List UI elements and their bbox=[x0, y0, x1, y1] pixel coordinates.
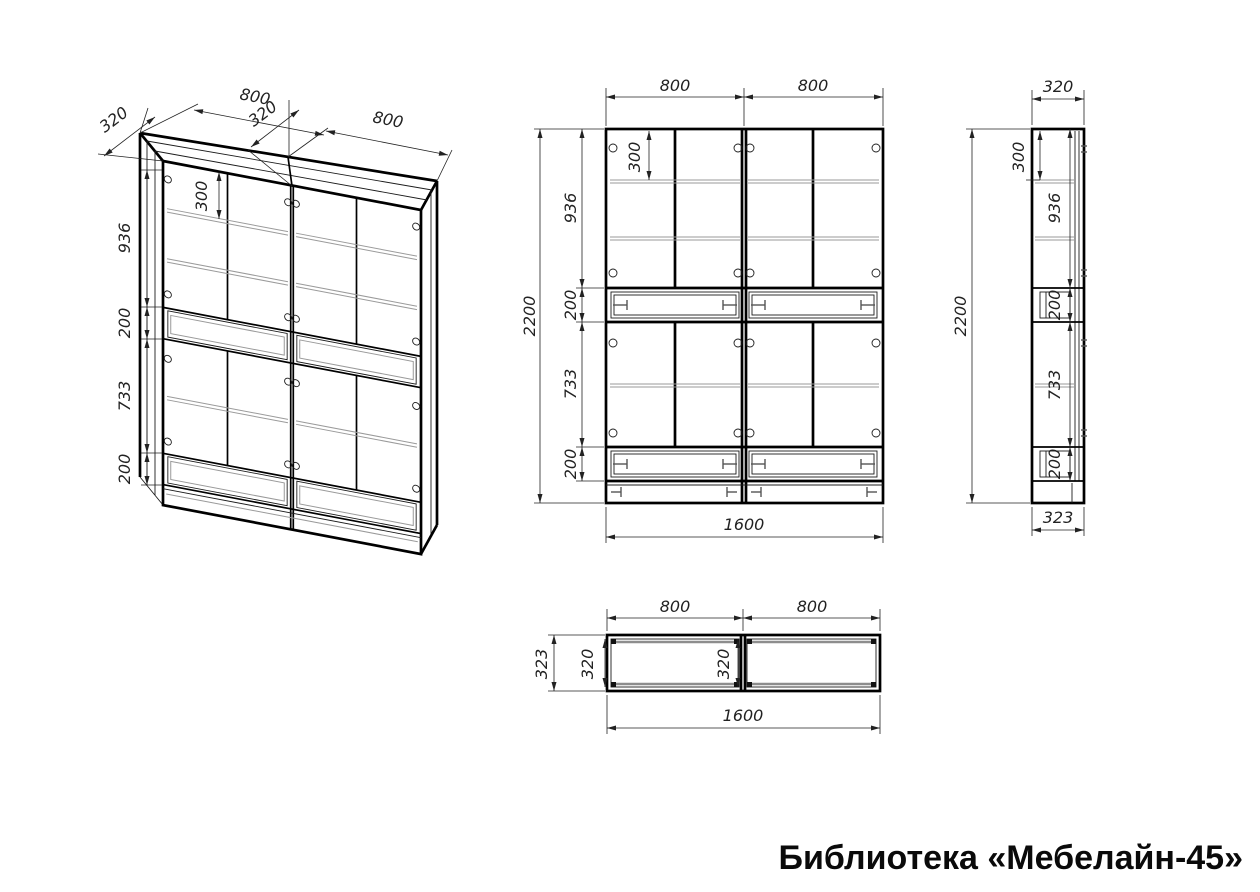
side-dim-top-section: 936 bbox=[1045, 193, 1064, 224]
iso-dim-depth-top: 320 bbox=[96, 103, 132, 137]
side-dim-depth-top: 320 bbox=[1043, 77, 1074, 96]
iso-top-face bbox=[140, 133, 437, 210]
top-dim-depth-mid: 320 bbox=[714, 649, 733, 680]
iso-front-face bbox=[163, 161, 421, 554]
technical-drawing: 320 800 320 800 936 200 bbox=[0, 0, 1260, 892]
iso-shelves bbox=[167, 209, 417, 448]
front-shelves bbox=[610, 180, 879, 387]
iso-dim-width-right: 800 bbox=[371, 107, 405, 131]
side-dim-mid-section: 733 bbox=[1045, 370, 1064, 401]
iso-dim-top-section: 936 bbox=[115, 223, 134, 254]
top-cabinet bbox=[607, 635, 880, 691]
front-dim-drawer-upper: 200 bbox=[561, 290, 580, 321]
isometric-view: 320 800 320 800 936 200 bbox=[96, 84, 452, 554]
front-cabinet bbox=[606, 129, 883, 503]
top-dim-width-right: 800 bbox=[797, 597, 828, 616]
side-dim-depth-bottom: 323 bbox=[1043, 508, 1074, 527]
front-dim-shelf-offset: 300 bbox=[625, 142, 644, 173]
front-plinth bbox=[606, 485, 883, 497]
side-dim-height-total: 2200 bbox=[951, 296, 970, 337]
top-dim-depth-inner: 320 bbox=[578, 649, 597, 680]
side-view: 320 2200 300 936 200 733 200 323 bbox=[951, 77, 1087, 536]
iso-right-side-panel bbox=[421, 181, 437, 554]
front-dim-width-left: 800 bbox=[660, 76, 691, 95]
blueprint-page: 320 800 320 800 936 200 bbox=[0, 0, 1260, 892]
side-dim-drawer-lower: 200 bbox=[1045, 449, 1064, 480]
front-hinge-circles bbox=[609, 144, 880, 437]
drawing-title: Библиотека «Мебелайн-45» bbox=[779, 839, 1243, 877]
front-dim-width-right: 800 bbox=[798, 76, 829, 95]
top-dim-width-left: 800 bbox=[660, 597, 691, 616]
iso-dim-mid-section: 733 bbox=[115, 381, 134, 412]
front-dim-top-section: 936 bbox=[561, 193, 580, 224]
iso-hinge-circles bbox=[164, 175, 419, 493]
front-dim-mid-section: 733 bbox=[561, 369, 580, 400]
top-dim-width-total: 1600 bbox=[723, 706, 764, 725]
side-dim-shelf-offset: 300 bbox=[1009, 142, 1028, 173]
front-view: 800 800 2200 936 200 733 200 300 bbox=[520, 76, 883, 543]
front-dim-height-total: 2200 bbox=[520, 296, 539, 337]
top-dimensions: 800 800 323 320 320 1600 bbox=[532, 597, 880, 734]
iso-dim-drawer-upper: 200 bbox=[115, 308, 134, 339]
front-dim-drawer-lower: 200 bbox=[561, 449, 580, 480]
side-dim-drawer-upper: 200 bbox=[1045, 290, 1064, 321]
front-dimensions: 800 800 2200 936 200 733 200 300 bbox=[520, 76, 883, 543]
iso-drawers bbox=[168, 311, 416, 530]
top-view: 800 800 323 320 320 1600 bbox=[532, 597, 880, 734]
top-dim-depth-outer: 323 bbox=[532, 649, 551, 680]
top-corner-blocks bbox=[611, 639, 876, 687]
front-dim-width-total: 1600 bbox=[724, 515, 765, 534]
iso-left-side-panel bbox=[140, 133, 163, 505]
iso-dim-shelf-offset: 300 bbox=[192, 181, 211, 212]
side-dimensions: 320 2200 300 936 200 733 200 323 bbox=[951, 77, 1084, 536]
iso-dim-drawer-lower: 200 bbox=[115, 454, 134, 485]
